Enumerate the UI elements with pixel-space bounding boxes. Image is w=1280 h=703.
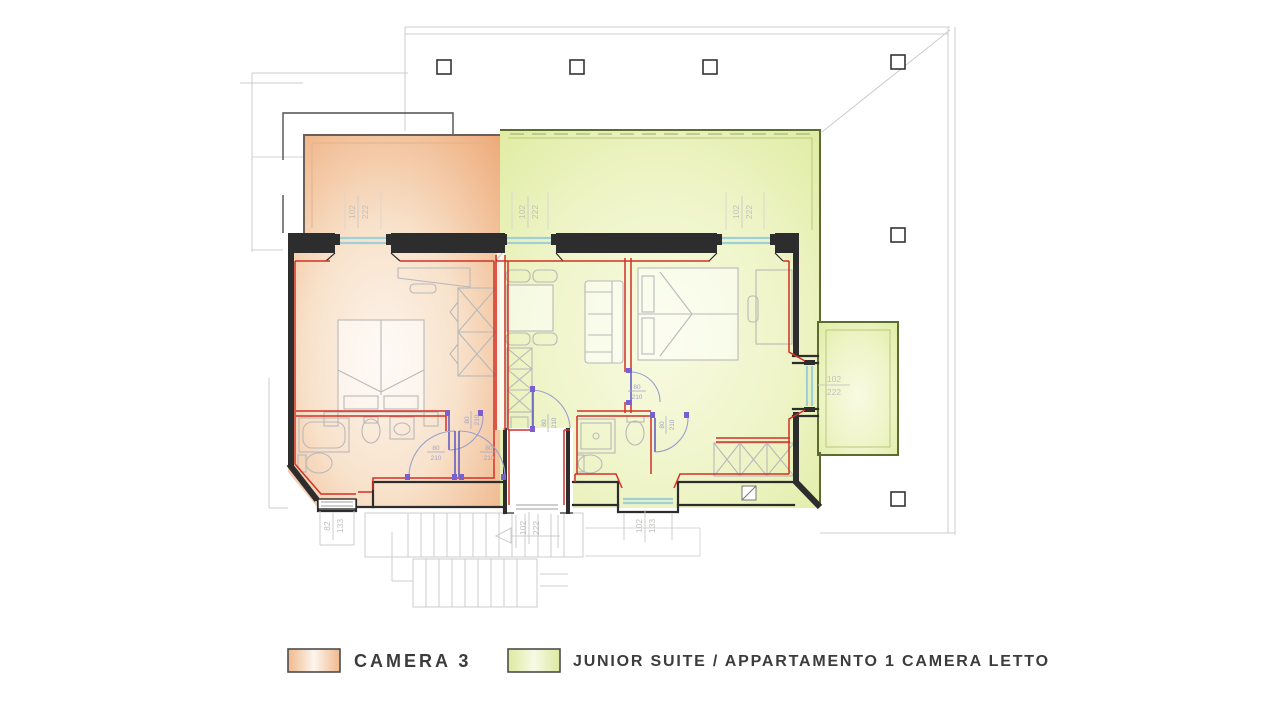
camera3-bed — [324, 320, 438, 426]
staircase — [365, 513, 583, 607]
svg-text:210: 210 — [669, 419, 676, 430]
svg-text:102: 102 — [347, 205, 357, 219]
svg-text:80: 80 — [464, 416, 471, 424]
svg-text:80: 80 — [659, 421, 666, 429]
svg-text:210: 210 — [474, 414, 481, 425]
svg-text:80: 80 — [633, 384, 641, 391]
svg-text:222: 222 — [744, 205, 754, 219]
legend: CAMERA 3 JUNIOR SUITE / APPARTAMENTO 1 C… — [288, 649, 1050, 672]
svg-text:210: 210 — [431, 455, 442, 462]
svg-text:102: 102 — [634, 519, 644, 533]
svg-text:210: 210 — [484, 455, 495, 462]
svg-text:102: 102 — [518, 521, 528, 535]
suite-bed — [638, 268, 738, 360]
floor-plan-page: 102 222 102 222 102 222 102 222 — [0, 0, 1280, 698]
svg-text:210: 210 — [632, 394, 643, 401]
legend-label-junior-suite: JUNIOR SUITE / APPARTAMENTO 1 CAMERA LET… — [573, 653, 1050, 670]
svg-text:222: 222 — [531, 521, 541, 535]
svg-text:133: 133 — [335, 519, 345, 533]
svg-text:102: 102 — [517, 205, 527, 219]
svg-text:133: 133 — [647, 519, 657, 533]
svg-text:222: 222 — [827, 387, 841, 397]
svg-text:80: 80 — [485, 445, 493, 452]
dim-camera3-bottom-window: 82 133 — [322, 512, 345, 540]
svg-text:80: 80 — [541, 419, 548, 427]
svg-text:102: 102 — [731, 205, 741, 219]
suite-sofa — [585, 281, 623, 363]
svg-text:80: 80 — [432, 445, 440, 452]
svg-text:210: 210 — [551, 417, 558, 428]
svg-text:102: 102 — [827, 374, 841, 384]
legend-label-camera3: CAMERA 3 — [354, 651, 471, 671]
floor-drain-symbol — [742, 486, 756, 500]
legend-swatch-junior-suite — [508, 649, 560, 672]
floor-plan-svg: 102 222 102 222 102 222 102 222 — [0, 0, 1280, 698]
legend-swatch-camera3 — [288, 649, 340, 672]
svg-text:82: 82 — [322, 521, 332, 531]
svg-text:222: 222 — [530, 205, 540, 219]
svg-text:222: 222 — [360, 205, 370, 219]
dim-suite-bottom-window: 102 133 — [634, 510, 657, 542]
